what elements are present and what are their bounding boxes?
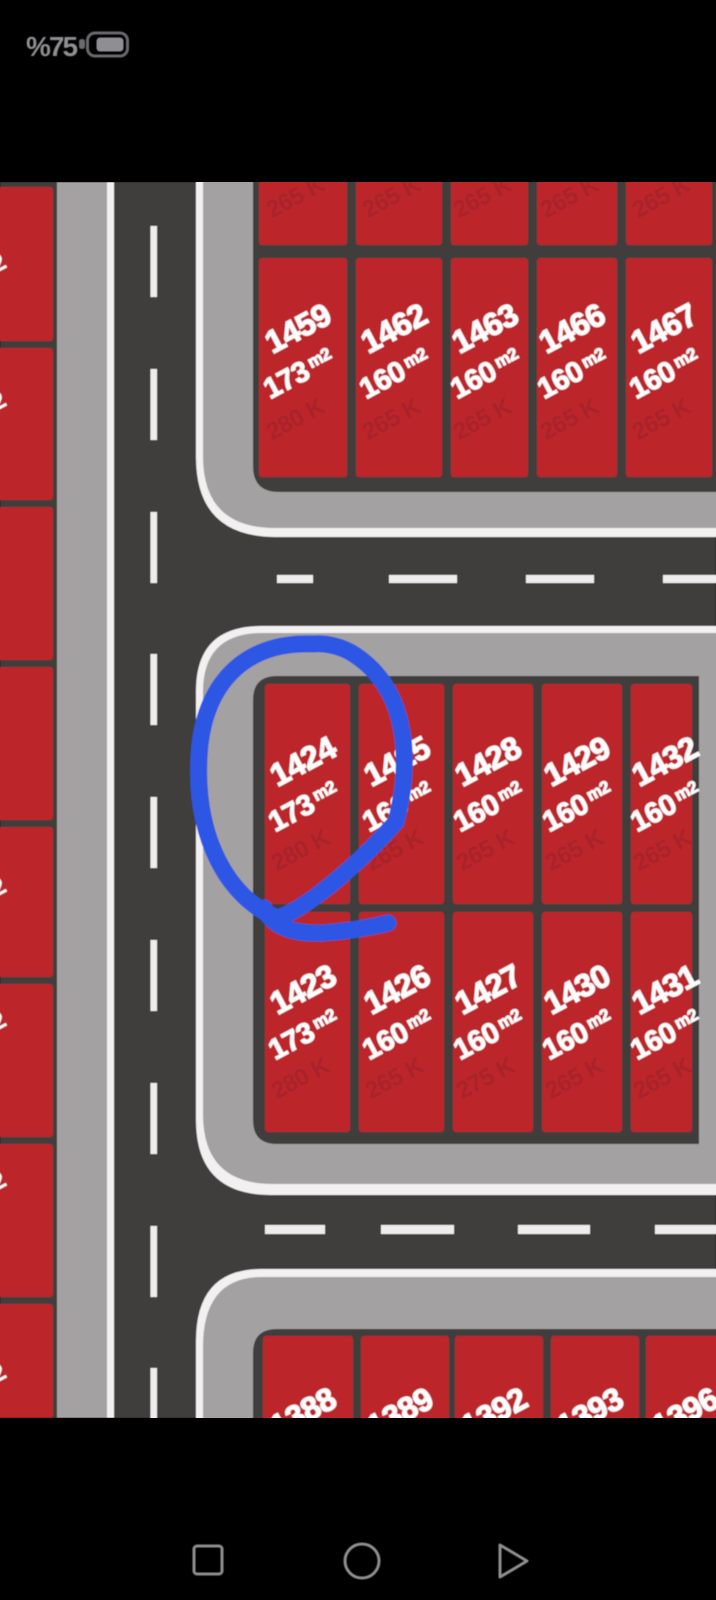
svg-text:%75: %75 — [26, 31, 77, 62]
